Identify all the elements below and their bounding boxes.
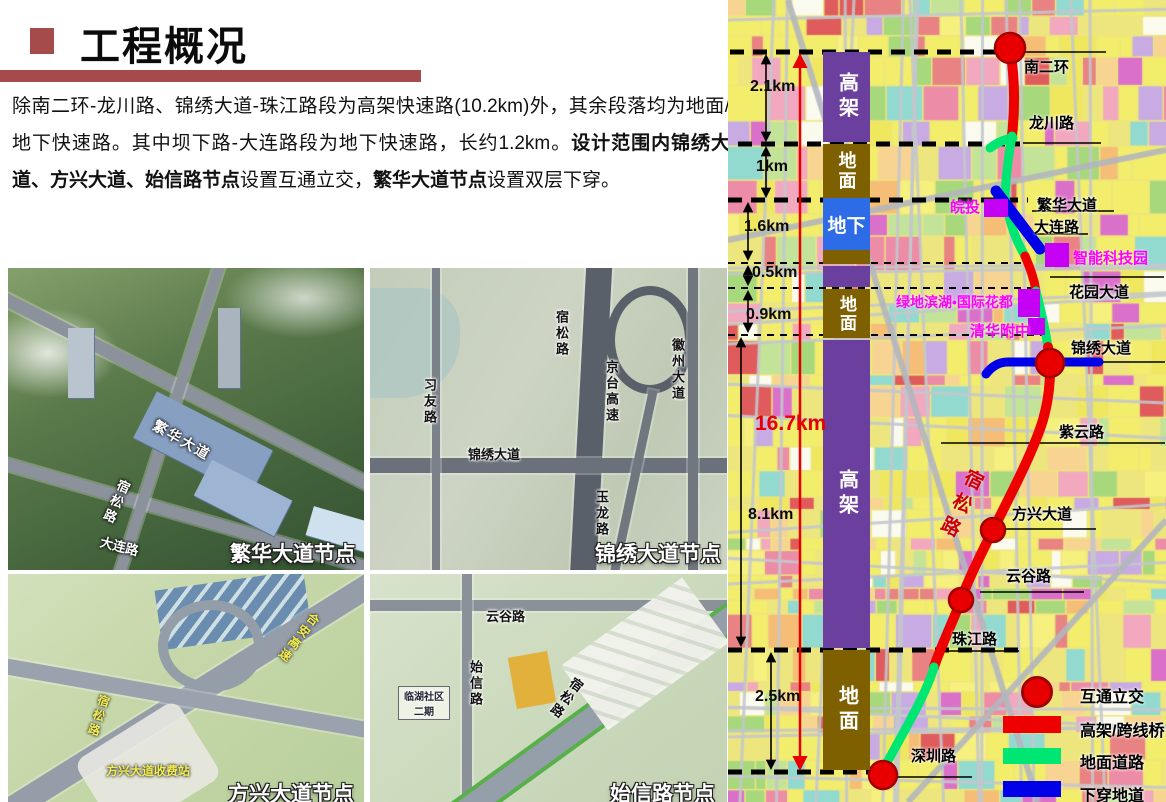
legend-underpass-icon — [1003, 781, 1061, 797]
node-image-fanhua: 繁华大道 宿松路 大连路 繁华大道节点 — [8, 268, 364, 570]
intro-text-3: 设置双层下穿。 — [487, 170, 620, 191]
section-box-ground-stub — [823, 250, 870, 264]
road-nanerhuan: 南二环 — [1024, 56, 1069, 77]
road-zhujiang: 珠江路 — [952, 628, 997, 649]
interchange-yungu — [949, 588, 973, 612]
road-yungu: 云谷路 — [1006, 565, 1051, 586]
road-fanhua: 繁华大道 — [1037, 194, 1097, 215]
node-caption: 始信路节点 — [610, 778, 715, 802]
dist-1km: 1km — [756, 158, 788, 176]
road-stripe — [370, 458, 727, 473]
road-dalian: 大连路 — [1034, 216, 1079, 237]
poi-square — [1018, 289, 1040, 317]
poi-zhineng: 智能科技园 — [1073, 247, 1148, 268]
section-label: 地面 — [838, 151, 856, 191]
section-label: 地面 — [837, 685, 857, 735]
section-label: 高架 — [837, 469, 857, 519]
section-box-ground-2: 地面 — [823, 289, 870, 338]
dist-2-5km: 2.5km — [755, 688, 800, 706]
ramp-loop — [158, 600, 264, 692]
dist-0-9km: 0.9km — [746, 306, 791, 324]
dist-1-6km: 1.6km — [744, 218, 789, 236]
section-label: 高架 — [837, 72, 857, 122]
photo-road-label: 京台高速 — [602, 360, 621, 424]
water — [370, 288, 460, 398]
interchange-shenzhen — [869, 761, 897, 789]
section-label: 地下 — [827, 211, 865, 238]
page-title: 工程概况 — [80, 14, 248, 72]
interchange-jinxiu — [1036, 349, 1064, 377]
interchange-fangxing — [981, 518, 1005, 542]
section-box-viaduct-2: 高架 — [823, 340, 870, 648]
photo-road-label: 始信路 — [466, 660, 485, 708]
legend-viaduct-label: 高架/跨线桥 — [1080, 717, 1164, 741]
photo-road-label: 习友路 — [420, 378, 439, 426]
dist-8-1km: 8.1km — [748, 506, 793, 524]
poi-square — [1028, 318, 1045, 335]
dist-total: 16.7km — [755, 412, 826, 436]
section-box-ground-3: 地面 — [823, 650, 870, 770]
route-ground — [1005, 136, 1025, 256]
node-caption: 繁华大道节点 — [230, 538, 356, 568]
dist-0-5km: 0.5km — [752, 264, 797, 282]
legend-underpass-label: 下穿地道 — [1080, 782, 1144, 802]
poi-wantou: 皖投 — [950, 196, 980, 217]
dist-2-1km: 2.1km — [750, 78, 795, 96]
parcel — [508, 651, 556, 709]
node-image-fangxing: 合安高速 宿松路 方兴大道收费站 方兴大道节点 — [8, 574, 364, 802]
section-box-viaduct-stub — [823, 266, 870, 287]
slide: 工程概况 除南二环-龙川路、锦绣大道-珠江路段为高架快速路(10.2km)外，其… — [0, 0, 1166, 802]
photo-road-label: 玉龙路 — [592, 490, 611, 538]
photo-road-label: 徽州大道 — [668, 338, 687, 402]
legend-interchange-label: 互通立交 — [1080, 683, 1144, 707]
road-shenzhen: 深圳路 — [911, 745, 956, 766]
section-box-underground: 地下 — [823, 198, 870, 250]
photo-road-label: 锦绣大道 — [468, 444, 520, 463]
legend-viaduct-icon — [1003, 716, 1061, 733]
node-caption: 方兴大道节点 — [228, 778, 354, 802]
legend-interchange-icon — [1021, 676, 1053, 708]
intro-text-2: 设置互通立交， — [240, 170, 373, 191]
legend-ground-icon — [1003, 748, 1061, 764]
photo-road-label: 方兴大道收费站 — [106, 762, 190, 779]
poi-square — [984, 199, 1008, 217]
route-elevated-short — [1025, 256, 1036, 291]
photo-road-label: 云谷路 — [486, 606, 525, 625]
node-caption: 锦绣大道节点 — [595, 538, 721, 568]
road-ziyun: 紫云路 — [1059, 421, 1104, 442]
road-stripe — [688, 268, 698, 570]
intro-paragraph: 除南二环-龙川路、锦绣大道-珠江路段为高架快速路(10.2km)外，其余段落均为… — [12, 88, 730, 199]
node-image-shixin: 云谷路 始信路 宿松路 临湖社区二期 始信路节点 — [370, 574, 727, 802]
road-huayuan: 花园大道 — [1069, 281, 1129, 302]
title-underline-bar — [0, 70, 421, 82]
road-longchuan: 龙川路 — [1029, 112, 1074, 133]
node-image-jinxiu: 宿松路 京台高速 徽州大道 习友路 锦绣大道 玉龙路 锦绣大道节点 — [370, 268, 727, 570]
photo-road-label: 宿松路 — [552, 310, 571, 358]
cloud — [224, 268, 364, 338]
section-box-ground-1: 地面 — [823, 144, 870, 198]
alignment-map: 高架 地面 地下 地面 高架 地面 2.1km 1km 1.6km 0.5km … — [728, 0, 1166, 802]
poi-lvdi: 绿地滨湖•国际花都 — [896, 292, 1013, 312]
photo-area-label: 临湖社区二期 — [398, 686, 450, 720]
poi-square — [1045, 243, 1069, 267]
section-box-viaduct-1: 高架 — [823, 52, 870, 142]
section-label: 地面 — [838, 295, 855, 333]
route — [885, 48, 1099, 766]
route-overlay — [728, 0, 1166, 802]
building — [68, 328, 94, 398]
road-fangxing: 方兴大道 — [1012, 503, 1072, 524]
intro-bold-2: 繁华大道节点 — [373, 170, 487, 191]
interchange-nanerhuan — [995, 33, 1025, 63]
legend-ground-label: 地面道路 — [1080, 749, 1144, 773]
title-bullet-square — [30, 28, 54, 54]
poi-qinghua: 清华附中 — [970, 320, 1030, 341]
building — [218, 308, 240, 388]
road-jinxiu: 锦绣大道 — [1071, 337, 1131, 358]
